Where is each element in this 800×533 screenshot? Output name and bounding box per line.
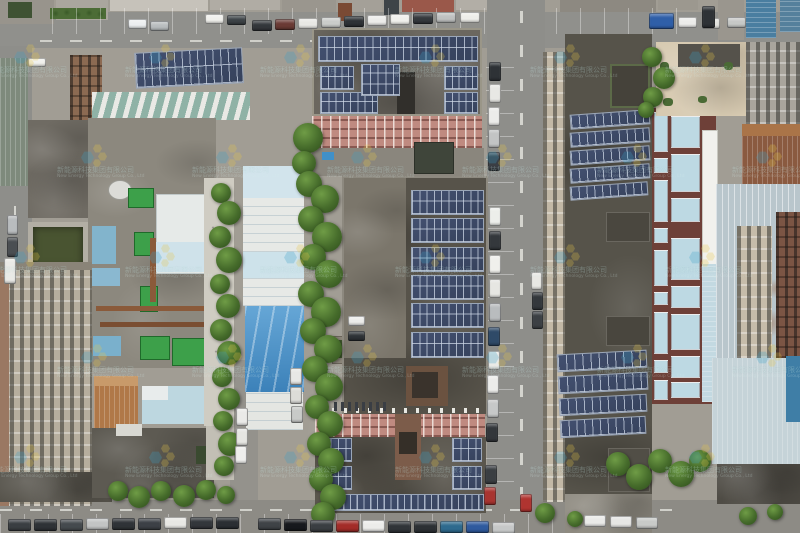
tree	[173, 485, 195, 507]
top-right-blue-roof	[780, 0, 800, 32]
parked-car	[584, 515, 606, 527]
debris-strip	[312, 148, 484, 176]
parked-car	[34, 519, 57, 531]
far-right-rust-facade	[776, 212, 800, 358]
tree	[217, 486, 235, 504]
solar-panel-array	[411, 303, 484, 328]
green-roof-corner	[8, 2, 32, 18]
parked-car	[489, 279, 501, 298]
tree	[151, 481, 171, 501]
tree	[216, 247, 242, 273]
parked-car	[390, 14, 410, 25]
solar-panel-array	[444, 66, 478, 90]
parked-car	[284, 519, 307, 531]
top-right-blue-roof	[746, 0, 776, 38]
parked-car	[310, 520, 333, 532]
tree	[128, 486, 150, 508]
tree	[211, 183, 231, 203]
parked-car	[236, 428, 248, 446]
parked-car	[413, 13, 433, 24]
solar-panel-array	[318, 36, 478, 62]
tree	[638, 102, 654, 118]
parked-car	[440, 521, 463, 533]
parked-car	[727, 17, 746, 28]
parked-car	[488, 351, 500, 370]
aerial-photo: 新能源科技集团有限公司New Energy Technology Group C…	[0, 0, 800, 533]
parked-car	[298, 18, 318, 29]
pond-water	[33, 227, 83, 267]
skylight	[654, 380, 668, 400]
parked-car	[28, 58, 46, 67]
pale-blue-roof-corner	[142, 386, 168, 400]
tree	[642, 47, 662, 67]
solar-panel-array	[452, 466, 482, 490]
white-roof-blue-part	[156, 242, 206, 272]
parked-car	[488, 129, 500, 148]
motorbike-row	[334, 402, 388, 411]
solar-panel-array	[134, 47, 244, 89]
skylight	[654, 312, 668, 354]
parked-car	[290, 368, 302, 385]
tree	[214, 456, 234, 476]
tree	[218, 388, 240, 410]
tree	[217, 201, 241, 225]
parked-car	[489, 84, 501, 103]
parked-car	[150, 21, 169, 31]
parked-car	[702, 6, 715, 28]
parked-car	[336, 520, 359, 532]
skylight	[671, 286, 700, 308]
parked-car	[489, 231, 501, 250]
parked-car	[291, 406, 303, 423]
canopy-striped	[92, 92, 250, 120]
tree	[210, 319, 232, 341]
parked-car	[112, 518, 135, 530]
tree	[689, 450, 711, 472]
parked-car	[344, 16, 364, 27]
rust-roof-highlight	[94, 376, 138, 386]
parked-car	[485, 465, 497, 484]
blue-shed	[92, 226, 116, 264]
solar-panel-array	[411, 275, 484, 300]
tree	[567, 511, 583, 527]
parked-car	[460, 12, 480, 23]
parked-car	[8, 519, 31, 531]
parked-car	[190, 517, 213, 529]
green-machine	[172, 338, 206, 366]
parked-car	[484, 487, 496, 505]
parked-car	[128, 19, 147, 29]
skylight	[671, 382, 700, 398]
parked-car	[489, 255, 501, 274]
parked-car	[488, 107, 500, 126]
tree	[210, 274, 230, 294]
ne-grey-facade	[746, 42, 800, 124]
tree	[626, 464, 652, 490]
green-machine	[140, 336, 170, 360]
parked-car	[649, 13, 674, 29]
parked-car	[678, 17, 697, 28]
mossy-lower-roof	[414, 142, 454, 174]
tree	[196, 480, 216, 500]
solar-panel-array	[320, 66, 354, 90]
skylight	[654, 158, 668, 173]
parked-car	[275, 19, 295, 30]
parked-car	[492, 522, 515, 533]
skylight	[654, 360, 668, 373]
tree	[217, 341, 241, 365]
tree	[209, 226, 231, 248]
teal-warehouse	[0, 58, 28, 186]
long-roof-blue-patch	[243, 252, 304, 278]
parked-car	[489, 303, 501, 322]
parked-car	[164, 517, 187, 529]
parked-car	[235, 446, 247, 464]
parked-car	[436, 12, 456, 23]
skylight	[671, 238, 700, 280]
solar-panel-array	[411, 190, 484, 215]
tree	[108, 481, 128, 501]
courtyard-plant	[663, 98, 673, 106]
parked-car	[489, 62, 501, 81]
skylight	[671, 198, 700, 222]
solar-panel-array	[322, 494, 484, 511]
blue-tarp-scrap	[322, 152, 334, 160]
grey-roof-block	[28, 120, 90, 218]
parked-car	[321, 17, 341, 28]
south-roof-tower-top	[399, 432, 417, 454]
parked-car	[290, 387, 302, 404]
tree	[216, 294, 240, 318]
right-street-dash	[520, 0, 523, 533]
parked-car	[488, 152, 500, 171]
north-building-facade	[312, 116, 482, 148]
highrise-balcony-col	[0, 270, 9, 506]
parked-car	[532, 292, 543, 310]
parked-car	[486, 423, 498, 442]
parked-car	[4, 258, 16, 284]
parked-car	[636, 517, 658, 529]
parked-car	[414, 521, 437, 533]
parked-car	[205, 14, 224, 24]
courtyard-plant	[698, 96, 707, 103]
parked-car	[466, 521, 489, 533]
parked-car	[362, 520, 385, 532]
parked-car	[532, 311, 543, 329]
parked-car	[216, 517, 239, 529]
white-hut	[116, 424, 142, 436]
blue-shed	[92, 268, 120, 286]
tree	[293, 123, 323, 153]
parked-car	[236, 408, 248, 426]
skylight	[671, 154, 700, 192]
east-roof-hut	[606, 316, 650, 346]
solar-panel-array	[361, 64, 400, 96]
rust-duct	[150, 238, 156, 302]
parked-car	[610, 516, 632, 528]
tree	[213, 411, 233, 431]
parked-car	[520, 494, 532, 512]
se-dark-roof	[717, 464, 800, 504]
parked-car	[60, 519, 83, 531]
solar-panel-array	[411, 218, 484, 243]
tree	[739, 507, 757, 525]
rust-duct	[100, 322, 204, 327]
tree	[653, 67, 675, 89]
east-roof-hut	[606, 212, 650, 242]
parked-car	[487, 375, 499, 394]
skylight	[671, 116, 700, 148]
parked-car	[348, 331, 365, 341]
parked-car	[367, 15, 387, 26]
skylight	[654, 228, 668, 243]
parked-car	[7, 237, 18, 257]
parked-car	[227, 15, 246, 25]
parked-car	[258, 518, 281, 530]
parked-car	[488, 327, 500, 346]
parked-car	[348, 316, 365, 326]
solar-panel-array	[444, 92, 478, 114]
tree	[535, 503, 555, 523]
skylight	[671, 314, 700, 350]
highrise-facade	[0, 262, 92, 506]
tree	[767, 504, 783, 520]
blue-shed	[93, 336, 121, 356]
parked-car	[252, 20, 272, 31]
green-machine	[128, 188, 154, 208]
skylight	[654, 250, 668, 286]
tree	[212, 367, 232, 387]
skylight	[654, 180, 668, 222]
east-window-wall	[737, 226, 772, 358]
rust-duct	[96, 306, 208, 311]
solar-panel-array	[411, 247, 484, 272]
solar-panel-array	[411, 332, 484, 358]
parked-car	[388, 521, 411, 533]
parked-car	[86, 518, 109, 530]
central-roof-tower-top	[412, 372, 438, 398]
parked-car	[138, 518, 161, 530]
courtyard-plant	[724, 62, 733, 70]
parked-car	[531, 272, 542, 290]
skylight	[654, 292, 668, 305]
skylight	[671, 356, 700, 378]
se-blue-roof-sliver	[786, 356, 800, 422]
skylight	[654, 112, 668, 152]
rust-roof-ne-top	[742, 124, 800, 136]
parked-car	[487, 399, 499, 418]
solar-panel-array	[452, 438, 482, 462]
parked-car	[7, 215, 18, 235]
parked-car	[489, 207, 501, 226]
